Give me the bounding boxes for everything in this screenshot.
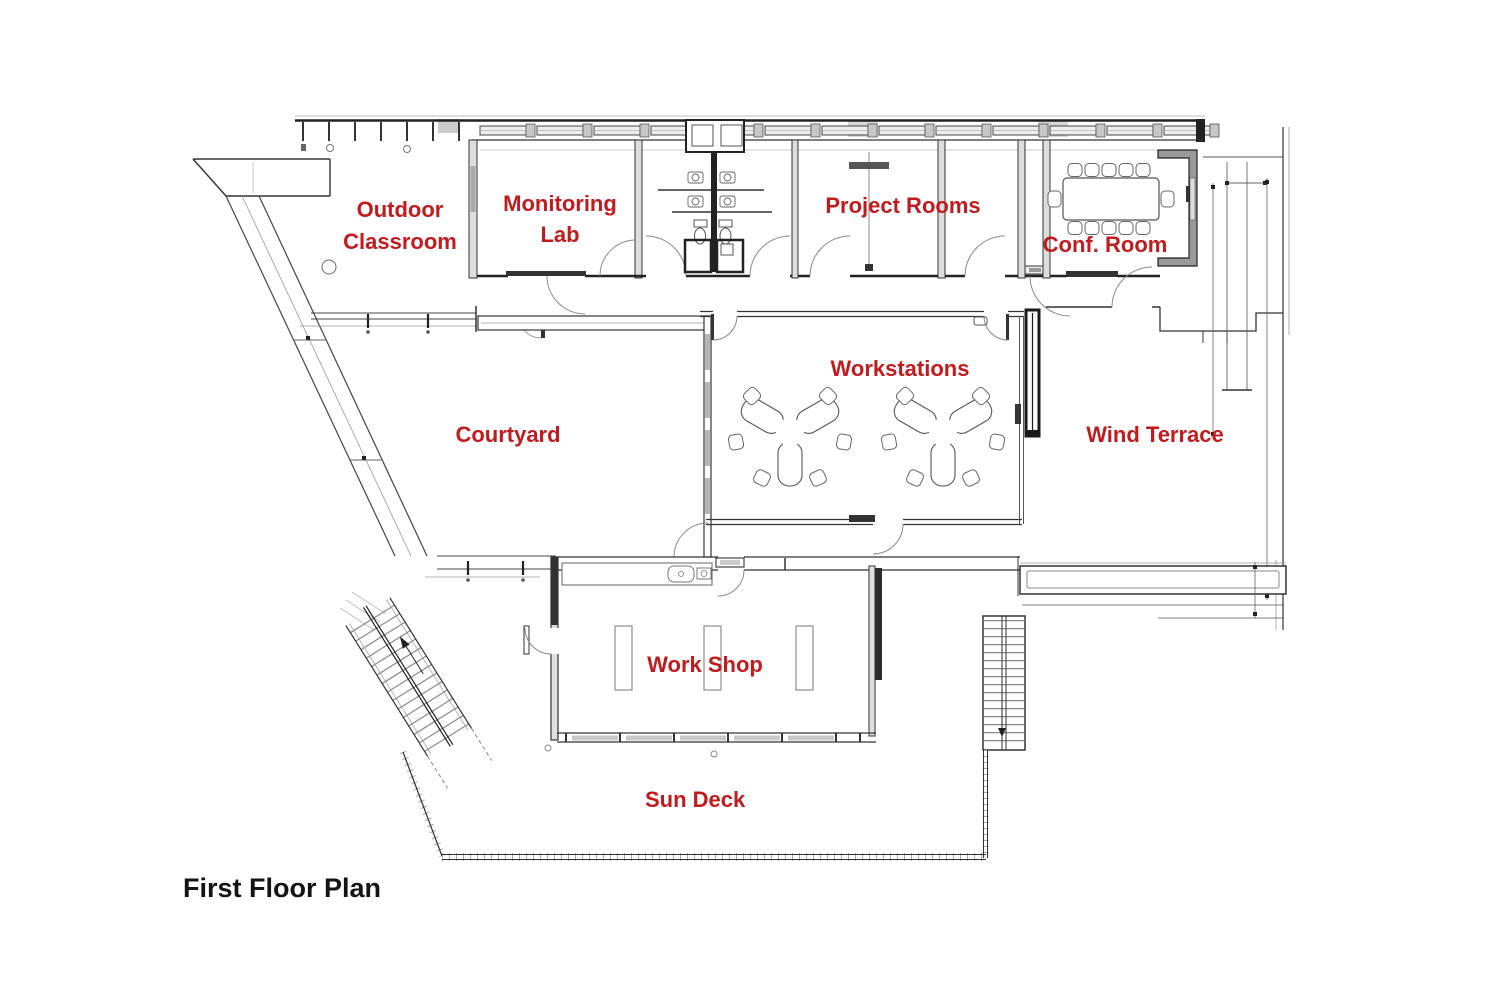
room-label-workstations: Workstations	[827, 353, 973, 384]
conference-table	[1048, 164, 1174, 235]
room-label-work-shop: Work Shop	[647, 649, 763, 680]
room-label-project-rooms: Project Rooms	[823, 190, 983, 221]
room-label-monitoring-lab: Monitoring Lab	[495, 188, 625, 250]
room-label-conf-room: Conf. Room	[1040, 229, 1170, 260]
room-label-outdoor-classroom: Outdoor Classroom	[325, 194, 475, 258]
floor-plan-drawing	[0, 0, 1500, 1000]
room-label-courtyard: Courtyard	[452, 419, 564, 450]
roof-edge-band	[295, 116, 1219, 153]
floor-plan-page: Outdoor Classroom Monitoring Lab Project…	[0, 0, 1500, 1000]
workstation-cluster-2	[881, 386, 1005, 488]
workstation-cluster-1	[728, 386, 852, 488]
workstations-room	[700, 310, 1039, 554]
plan-title: First Floor Plan	[183, 873, 381, 904]
stairs-right	[983, 616, 1025, 750]
courtyard-walls	[300, 260, 711, 557]
room-label-wind-terrace: Wind Terrace	[1085, 419, 1225, 450]
room-label-sun-deck: Sun Deck	[645, 784, 745, 815]
restrooms	[646, 120, 790, 276]
stairs-to-sun-deck	[340, 592, 492, 788]
